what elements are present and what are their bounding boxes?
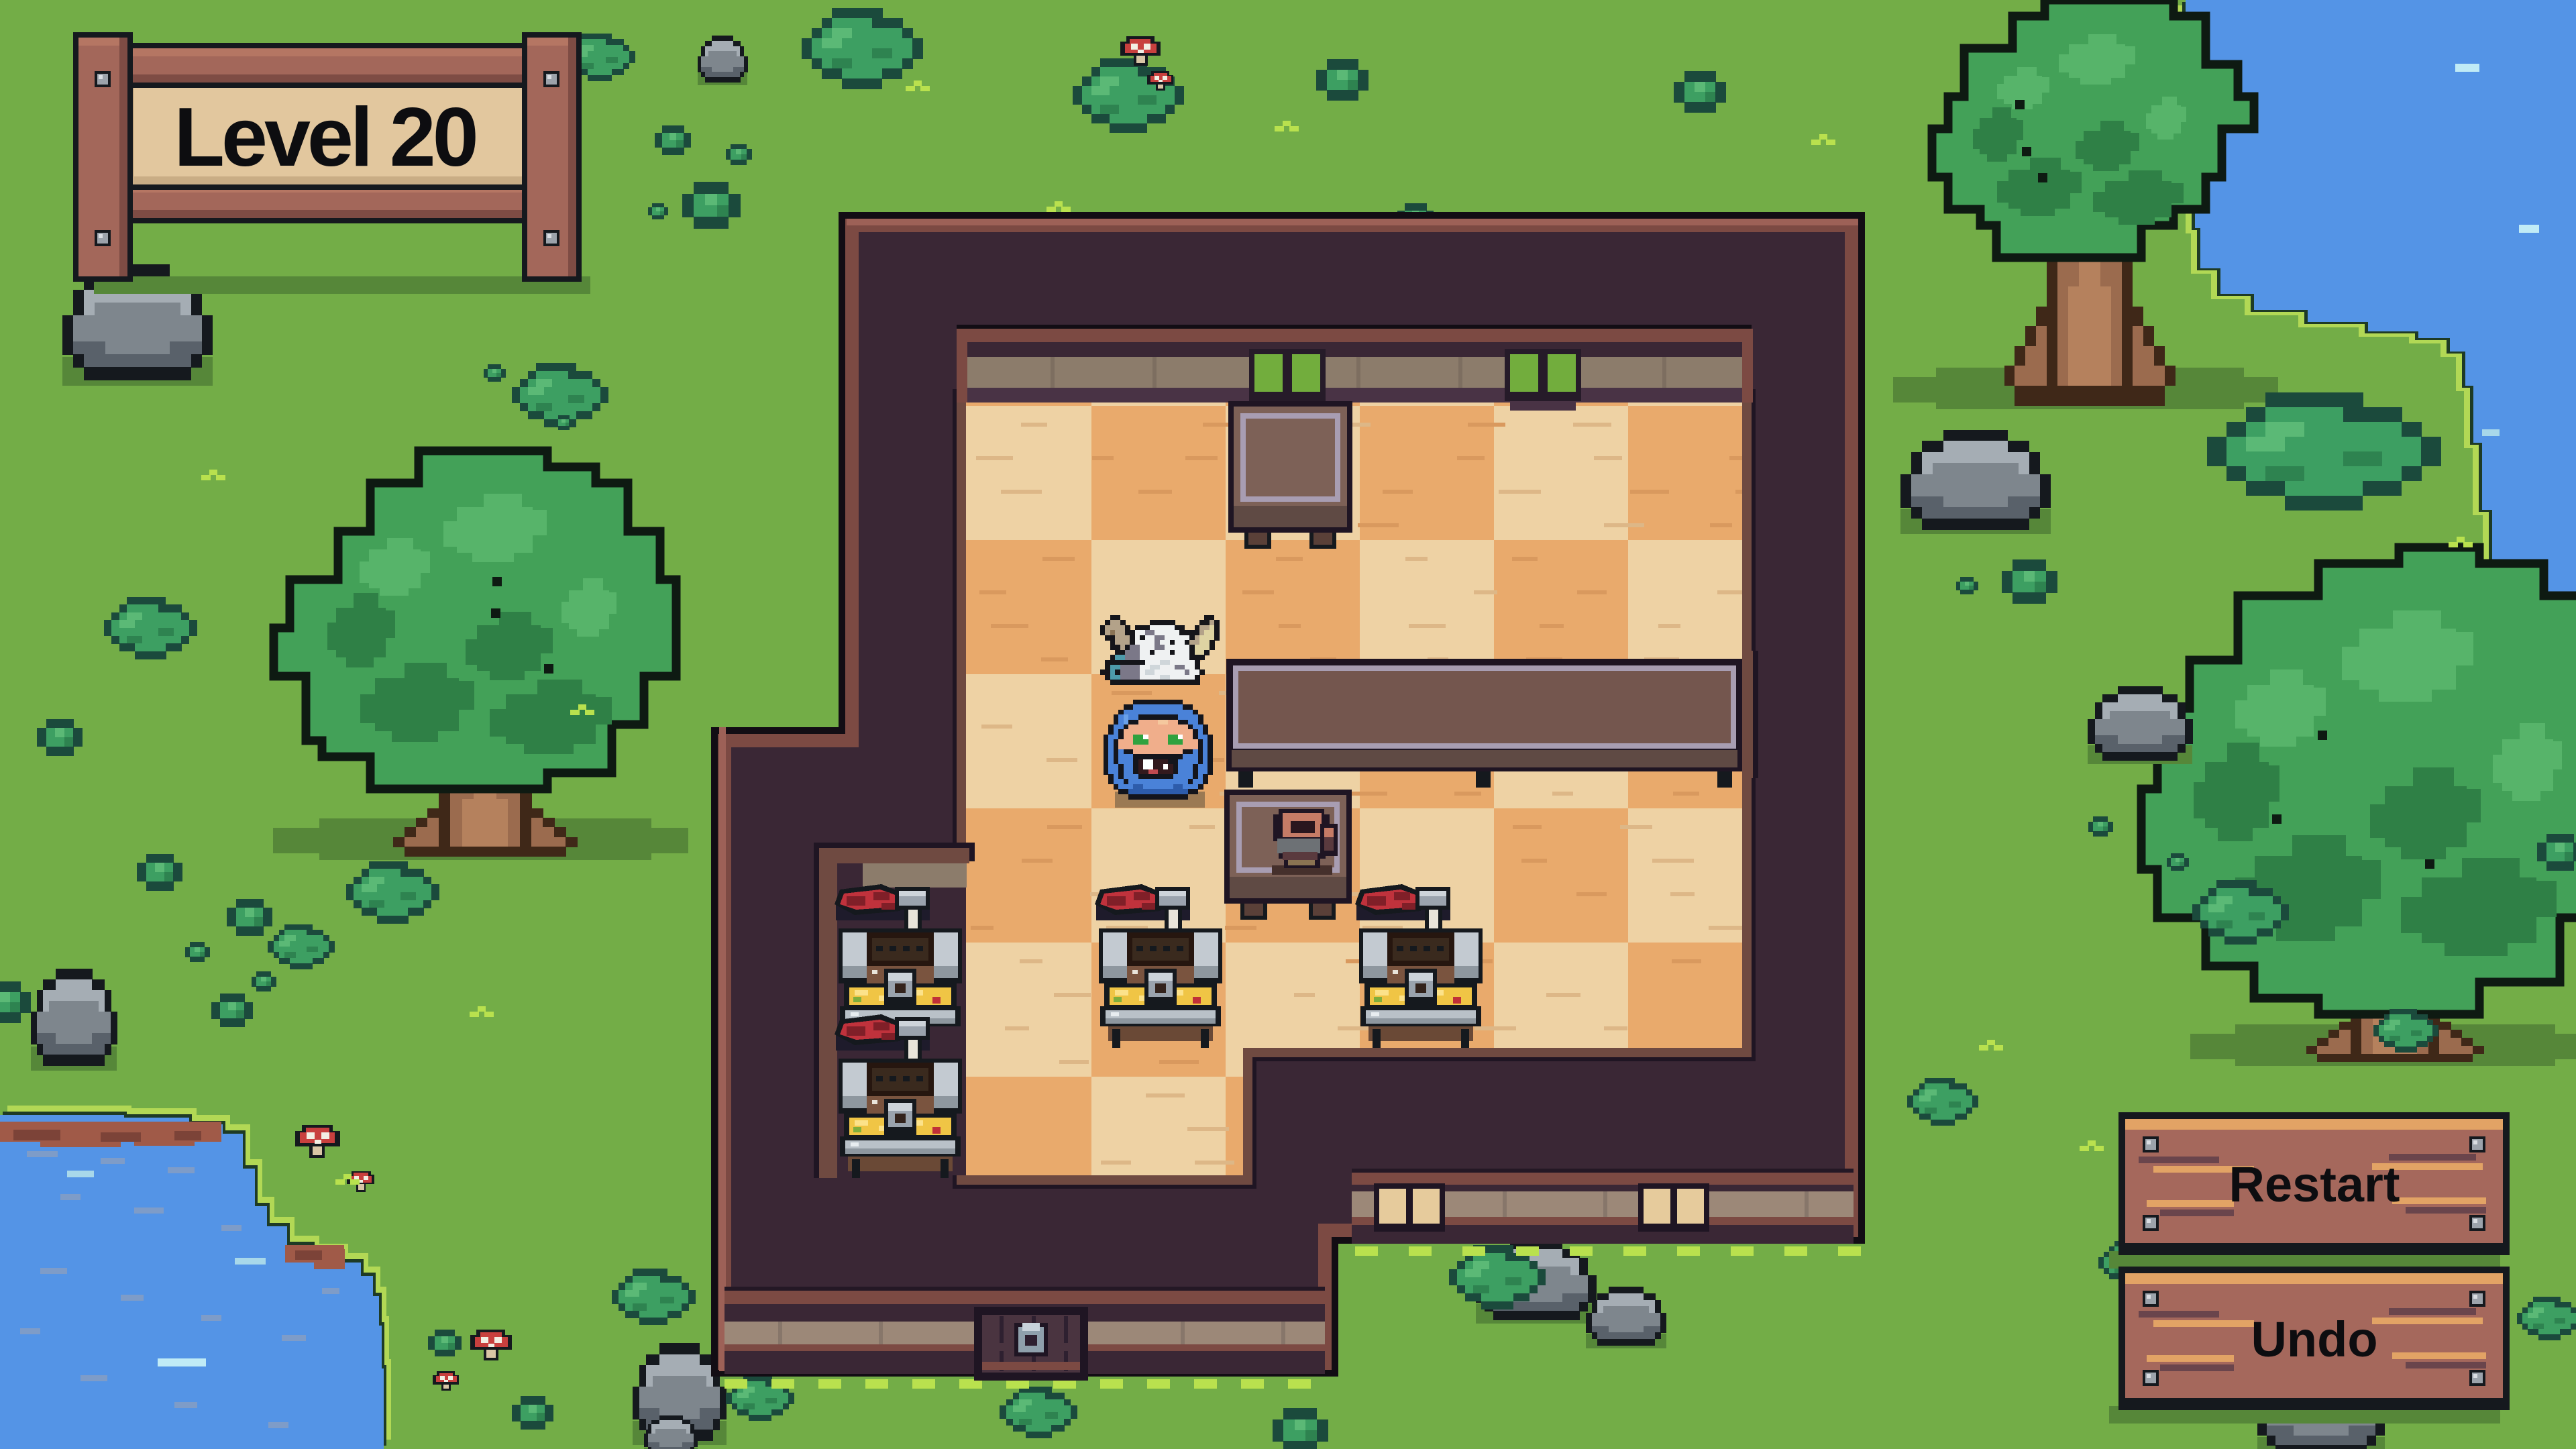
svg-text:Restart: Restart	[2229, 1157, 2400, 1212]
svg-text:Level 20: Level 20	[174, 91, 475, 184]
svg-text:Undo: Undo	[2251, 1311, 2377, 1367]
